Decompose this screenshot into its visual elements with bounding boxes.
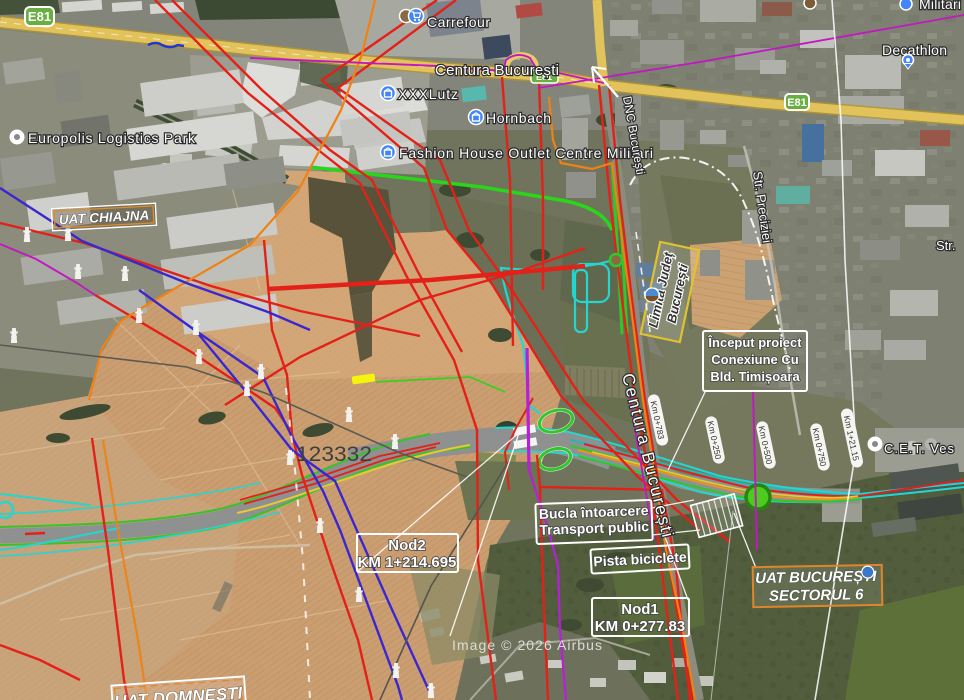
svg-text:Centura București: Centura București	[435, 62, 559, 79]
svg-text:123332: 123332	[296, 443, 372, 466]
svg-text:Fashion House Outlet Centre Mi: Fashion House Outlet Centre Militari	[399, 145, 653, 161]
svg-text:Decathlon: Decathlon	[882, 42, 947, 58]
svg-text:SECTORUL 6: SECTORUL 6	[769, 586, 864, 605]
svg-text:UAT BUCUREȘTI: UAT BUCUREȘTI	[755, 568, 877, 587]
svg-text:Image © 2026 Airbus: Image © 2026 Airbus	[452, 637, 602, 653]
svg-text:Bld. Timișoara: Bld. Timișoara	[710, 369, 800, 384]
svg-text:Militari: Militari	[919, 0, 961, 12]
svg-text:E81: E81	[787, 97, 807, 109]
svg-text:Nod1: Nod1	[621, 601, 659, 618]
svg-text:E81: E81	[28, 9, 51, 24]
svg-text:Început proiect: Început proiect	[707, 335, 802, 350]
svg-text:Str.: Str.	[936, 238, 956, 253]
svg-text:Carrefour: Carrefour	[427, 14, 490, 30]
svg-text:Conexiune Cu: Conexiune Cu	[711, 352, 798, 367]
svg-text:C.E.T. Ves: C.E.T. Ves	[884, 441, 955, 456]
svg-text:Europolis Logistics Park: Europolis Logistics Park	[28, 130, 196, 146]
svg-text:Nod2: Nod2	[388, 537, 426, 554]
svg-text:KM 1+214.695: KM 1+214.695	[358, 554, 457, 571]
svg-text:Hornbach: Hornbach	[486, 110, 551, 126]
svg-text:KM 0+277.83: KM 0+277.83	[595, 618, 685, 635]
svg-text:XXXLutz: XXXLutz	[398, 86, 458, 102]
